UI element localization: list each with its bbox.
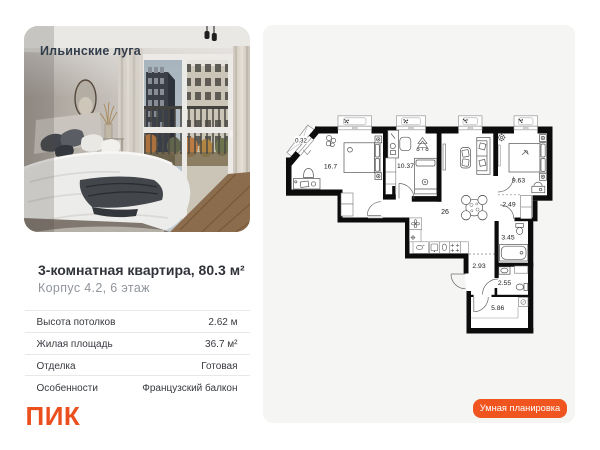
svg-text:0.32: 0.32 [295, 139, 307, 145]
svg-text:9.63: 9.63 [512, 178, 525, 185]
svg-text:2.93: 2.93 [472, 263, 485, 270]
svg-text:3.45: 3.45 [501, 235, 514, 242]
svg-text:5.86: 5.86 [491, 305, 504, 312]
svg-text:16.7: 16.7 [324, 164, 337, 171]
svg-text:10.37: 10.37 [397, 163, 414, 170]
svg-text:26: 26 [441, 209, 449, 216]
svg-text:2.49: 2.49 [502, 202, 515, 209]
svg-text:2.55: 2.55 [498, 280, 511, 287]
